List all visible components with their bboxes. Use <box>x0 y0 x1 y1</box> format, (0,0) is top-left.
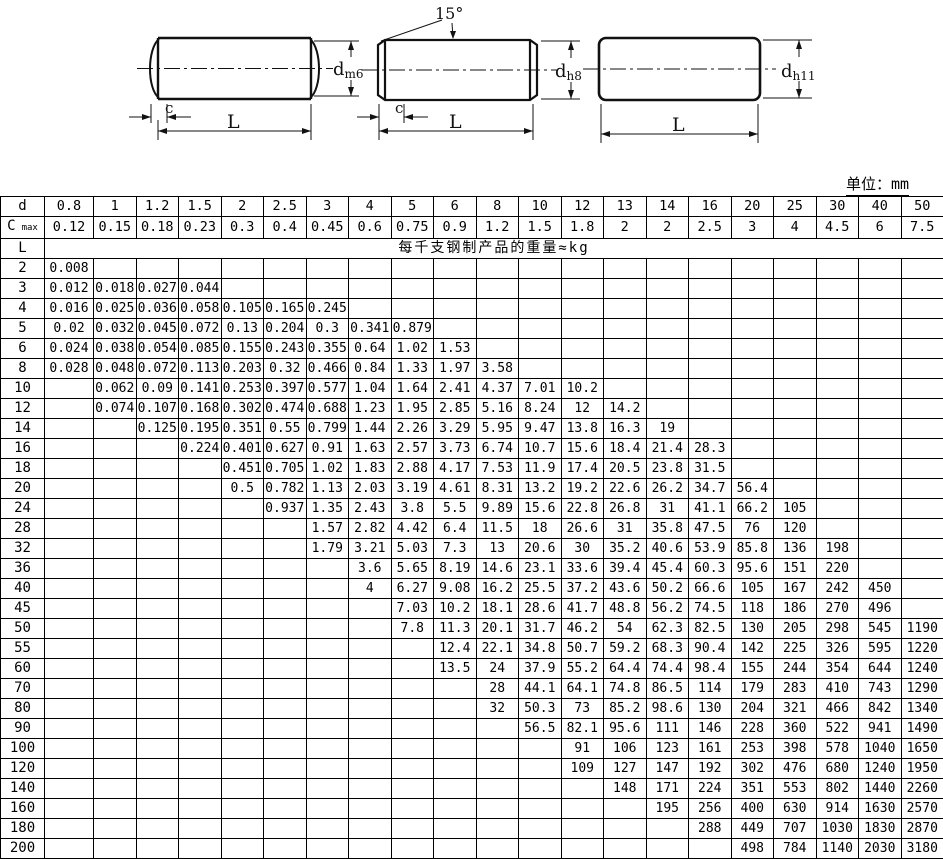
weight-cell <box>264 639 307 659</box>
table-row: 140.1250.1950.3510.550.7991.442.263.295.… <box>1 419 943 439</box>
table-row: 6013.52437.955.264.474.498.4155244354644… <box>1 659 943 679</box>
weight-cell <box>901 599 943 619</box>
pin-chamfered-drawing <box>357 20 580 140</box>
weight-cell <box>306 579 349 599</box>
weight-cell: 466 <box>816 699 859 719</box>
weight-cell: 23.1 <box>519 559 562 579</box>
weight-cell <box>731 299 774 319</box>
cmax-cell: 0.3 <box>221 217 264 239</box>
weight-cell <box>434 719 477 739</box>
weight-cell: 127 <box>604 759 647 779</box>
weight-cell <box>349 659 392 679</box>
weight-cell <box>901 499 943 519</box>
weight-cell: 167 <box>774 579 817 599</box>
weight-cell: 34.7 <box>689 479 732 499</box>
length-cell: 36 <box>1 559 45 579</box>
weight-cell: 707 <box>774 819 817 839</box>
weight-cell <box>816 519 859 539</box>
weight-cell: 98.6 <box>646 699 689 719</box>
d-header-cell: 0.8 <box>45 197 94 217</box>
weight-cell: 6.4 <box>434 519 477 539</box>
weight-cell <box>731 359 774 379</box>
d-header-cell: 13 <box>604 197 647 217</box>
weight-cell: 146 <box>689 719 732 739</box>
weight-cell: 0.474 <box>264 399 307 419</box>
weight-cell: 16.2 <box>476 579 519 599</box>
weight-cell: 10.2 <box>561 379 604 399</box>
weight-cell: 31.7 <box>519 619 562 639</box>
weight-cell <box>859 399 902 419</box>
weight-cell: 1650 <box>901 739 943 759</box>
length-cell: 28 <box>1 519 45 539</box>
weight-cell: 105 <box>774 499 817 519</box>
weight-cell <box>179 719 222 739</box>
weight-cell <box>391 639 434 659</box>
weight-cell: 105 <box>731 579 774 599</box>
weight-cell <box>859 299 902 319</box>
weight-cell: 155 <box>731 659 774 679</box>
weight-table: d0.811.21.522.53456810121314162025304050… <box>0 196 943 859</box>
weight-cell <box>774 259 817 279</box>
weight-cell: 0.02 <box>45 319 94 339</box>
weight-cell: 283 <box>774 679 817 699</box>
weight-cell: 2.57 <box>391 439 434 459</box>
weight-cell <box>136 519 179 539</box>
weight-cell: 644 <box>859 659 902 679</box>
weight-cell: 410 <box>816 679 859 699</box>
weight-cell <box>45 379 94 399</box>
weight-cell <box>349 279 392 299</box>
weight-cell: 28.6 <box>519 599 562 619</box>
weight-cell: 198 <box>816 539 859 559</box>
cmax-cell: 0.18 <box>136 217 179 239</box>
weight-cell: 0.397 <box>264 379 307 399</box>
cmax-label-main: C <box>7 218 15 234</box>
weight-cell <box>604 259 647 279</box>
weight-cell: 0.09 <box>136 379 179 399</box>
weight-cell: 545 <box>859 619 902 639</box>
weight-cell <box>901 299 943 319</box>
weight-cell: 179 <box>731 679 774 699</box>
weight-cell <box>179 799 222 819</box>
weight-cell <box>221 659 264 679</box>
table-row: 702844.164.174.886.51141792834107431290 <box>1 679 943 699</box>
weight-cell <box>45 499 94 519</box>
weight-cell <box>391 299 434 319</box>
weight-cell: 0.204 <box>264 319 307 339</box>
weight-cell <box>434 279 477 299</box>
weight-cell <box>136 699 179 719</box>
table-row: 180288449707103018302870 <box>1 819 943 839</box>
weight-cell: 11.9 <box>519 459 562 479</box>
weight-cell: 0.627 <box>264 439 307 459</box>
weight-cell: 9.47 <box>519 419 562 439</box>
table-row: 803250.37385.298.61302043214668421340 <box>1 699 943 719</box>
cmax-cell: 0.9 <box>434 217 477 239</box>
weight-cell <box>179 459 222 479</box>
d-header-cell: 16 <box>689 197 732 217</box>
l-row-label: L <box>1 239 45 259</box>
weight-cell: 56.2 <box>646 599 689 619</box>
weight-cell <box>646 319 689 339</box>
weight-cell <box>179 599 222 619</box>
d-header-cell: 8 <box>476 197 519 217</box>
length-cell: 10 <box>1 379 45 399</box>
weight-cell <box>221 279 264 299</box>
weight-cell: 1.53 <box>434 339 477 359</box>
weight-cell <box>774 399 817 419</box>
weight-cell: 45.4 <box>646 559 689 579</box>
weight-cell: 1.02 <box>306 459 349 479</box>
weight-cell <box>136 559 179 579</box>
weight-cell: 0.302 <box>221 399 264 419</box>
weight-cell: 0.113 <box>179 359 222 379</box>
length-cell: 12 <box>1 399 45 419</box>
weight-cell <box>646 819 689 839</box>
weight-cell: 5.5 <box>434 499 477 519</box>
weight-cell <box>45 799 94 819</box>
weight-cell <box>391 779 434 799</box>
weight-cell: 0.688 <box>306 399 349 419</box>
weight-cell <box>476 799 519 819</box>
weight-cell <box>45 639 94 659</box>
weight-cell <box>731 379 774 399</box>
weight-cell: 171 <box>646 779 689 799</box>
weight-cell: 1.57 <box>306 519 349 539</box>
weight-cell: 2.41 <box>434 379 477 399</box>
weight-cell: 2.03 <box>349 479 392 499</box>
weight-cell: 15.6 <box>519 499 562 519</box>
weight-cell: 120 <box>774 519 817 539</box>
weight-cell <box>689 259 732 279</box>
table-row: 5512.422.134.850.759.268.390.41422253265… <box>1 639 943 659</box>
weight-cell <box>94 739 137 759</box>
weight-cell <box>221 619 264 639</box>
weight-cell <box>45 459 94 479</box>
length-cell: 40 <box>1 579 45 599</box>
weight-cell <box>434 299 477 319</box>
d-header-cell: 10 <box>519 197 562 217</box>
d-header-cell: 2.5 <box>264 197 307 217</box>
pin-domed-drawing <box>129 38 359 140</box>
weight-cell: 31.5 <box>689 459 732 479</box>
weight-cell: 0.025 <box>94 299 137 319</box>
weight-cell <box>519 259 562 279</box>
weight-cell: 4.17 <box>434 459 477 479</box>
weight-cell: 0.195 <box>179 419 222 439</box>
weight-cell <box>221 559 264 579</box>
weight-cell: 0.018 <box>94 279 137 299</box>
length-cell: 140 <box>1 779 45 799</box>
weight-cell: 2870 <box>901 819 943 839</box>
weight-cell <box>45 779 94 799</box>
weight-cell: 59.2 <box>604 639 647 659</box>
weight-cell <box>519 739 562 759</box>
unit-label: 单位：mm <box>846 173 909 196</box>
weight-cell: 351 <box>731 779 774 799</box>
weight-cell <box>264 619 307 639</box>
weight-cell <box>816 359 859 379</box>
weight-cell <box>45 759 94 779</box>
weight-cell: 8.24 <box>519 399 562 419</box>
weight-cell <box>434 779 477 799</box>
weight-cell <box>901 439 943 459</box>
cmax-row: Cmax0.120.150.180.230.30.40.450.60.750.9… <box>1 217 943 239</box>
weight-cell: 1.97 <box>434 359 477 379</box>
weight-cell <box>136 639 179 659</box>
weight-cell <box>901 519 943 539</box>
weight-cell <box>264 659 307 679</box>
weight-cell: 48.8 <box>604 599 647 619</box>
weight-cell <box>94 439 137 459</box>
weight-cell: 22.1 <box>476 639 519 659</box>
length-cell: 100 <box>1 739 45 759</box>
weight-cell: 3.73 <box>434 439 477 459</box>
weight-cell: 114 <box>689 679 732 699</box>
weight-cell <box>561 319 604 339</box>
weight-cell: 98.4 <box>689 659 732 679</box>
weight-cell <box>349 679 392 699</box>
cmax-cell: 2.5 <box>689 217 732 239</box>
weight-cell: 3.21 <box>349 539 392 559</box>
length-cell: 180 <box>1 819 45 839</box>
d-header-cell: 20 <box>731 197 774 217</box>
weight-cell: 398 <box>774 739 817 759</box>
pin3-diameter-label: dh11 <box>781 61 816 83</box>
weight-cell <box>604 299 647 319</box>
cmax-cell: 0.23 <box>179 217 222 239</box>
weight-cell: 11.5 <box>476 519 519 539</box>
weight-cell <box>94 639 137 659</box>
weight-cell <box>901 479 943 499</box>
weight-cell: 288 <box>689 819 732 839</box>
weight-cell: 0.799 <box>306 419 349 439</box>
weight-cell: 5.65 <box>391 559 434 579</box>
weight-cell: 6.74 <box>476 439 519 459</box>
weight-cell: 1.23 <box>349 399 392 419</box>
weight-cell: 630 <box>774 799 817 819</box>
weight-cell <box>179 679 222 699</box>
weight-cell <box>221 599 264 619</box>
table-row: 240.9371.352.433.85.59.8915.622.826.8314… <box>1 499 943 519</box>
weight-cell: 0.937 <box>264 499 307 519</box>
weight-cell: 298 <box>816 619 859 639</box>
weight-cell <box>136 819 179 839</box>
weight-cell <box>859 279 902 299</box>
weight-cell: 142 <box>731 639 774 659</box>
weight-cell: 95.6 <box>604 719 647 739</box>
weight-cell: 0.451 <box>221 459 264 479</box>
weight-cell: 0.027 <box>136 279 179 299</box>
weight-cell: 20.1 <box>476 619 519 639</box>
weight-cell <box>604 279 647 299</box>
weight-cell <box>306 779 349 799</box>
cmax-cell: 0.12 <box>45 217 94 239</box>
weight-cell <box>434 739 477 759</box>
weight-cell: 0.341 <box>349 319 392 339</box>
weight-cell <box>859 499 902 519</box>
cmax-cell: 4.5 <box>816 217 859 239</box>
weight-cell: 3.8 <box>391 499 434 519</box>
weight-cell: 242 <box>816 579 859 599</box>
weight-cell: 7.01 <box>519 379 562 399</box>
weight-cell <box>136 779 179 799</box>
weight-cell <box>731 339 774 359</box>
weight-cell: 270 <box>816 599 859 619</box>
weight-cell <box>561 819 604 839</box>
weight-cell: 15.6 <box>561 439 604 459</box>
weight-cell <box>646 339 689 359</box>
weight-cell: 0.125 <box>136 419 179 439</box>
weight-cell <box>179 519 222 539</box>
weight-cell: 0.351 <box>221 419 264 439</box>
table-row: 16019525640063091416302570 <box>1 799 943 819</box>
d-header-cell: 50 <box>901 197 943 217</box>
weight-cell <box>136 799 179 819</box>
weight-cell <box>264 559 307 579</box>
weight-cell <box>901 399 943 419</box>
weight-cell: 6.27 <box>391 579 434 599</box>
weight-cell: 2.26 <box>391 419 434 439</box>
weight-cell: 1.63 <box>349 439 392 459</box>
weight-cell <box>179 619 222 639</box>
weight-cell: 802 <box>816 779 859 799</box>
cmax-cell: 2 <box>646 217 689 239</box>
weight-cell: 25.5 <box>519 579 562 599</box>
weight-cell <box>774 419 817 439</box>
d-header-cell: 5 <box>391 197 434 217</box>
d-header-cell: 1.2 <box>136 197 179 217</box>
weight-cell: 9.08 <box>434 579 477 599</box>
weight-table-body: d0.811.21.522.53456810121314162025304050… <box>1 197 943 859</box>
weight-cell <box>264 739 307 759</box>
weight-cell: 1.44 <box>349 419 392 439</box>
weight-cell <box>264 799 307 819</box>
weight-cell <box>476 319 519 339</box>
weight-cell: 0.008 <box>45 259 94 279</box>
table-row: 200.50.7821.132.033.194.618.3113.219.222… <box>1 479 943 499</box>
weight-cell: 66.6 <box>689 579 732 599</box>
weight-cell: 0.032 <box>94 319 137 339</box>
weight-cell: 2.43 <box>349 499 392 519</box>
weight-cell <box>94 819 137 839</box>
weight-cell <box>646 379 689 399</box>
weight-cell <box>94 519 137 539</box>
table-row: 4046.279.0816.225.537.243.650.266.610516… <box>1 579 943 599</box>
weight-cell <box>221 759 264 779</box>
weight-cell: 13.5 <box>434 659 477 679</box>
weight-cell <box>604 359 647 379</box>
weight-cell: 0.165 <box>264 299 307 319</box>
weight-cell: 3.58 <box>476 359 519 379</box>
weight-cell <box>264 259 307 279</box>
weight-cell: 0.577 <box>306 379 349 399</box>
weight-cell: 18.4 <box>604 439 647 459</box>
weight-cell <box>646 259 689 279</box>
weight-cell <box>476 299 519 319</box>
weight-cell: 53.9 <box>689 539 732 559</box>
weight-cell: 74.5 <box>689 599 732 619</box>
weight-cell: 3.29 <box>434 419 477 439</box>
weight-cell: 54 <box>604 619 647 639</box>
weight-cell: 321 <box>774 699 817 719</box>
weight-cell <box>264 579 307 599</box>
weight-cell <box>179 659 222 679</box>
weight-cell <box>94 679 137 699</box>
weight-cell: 0.155 <box>221 339 264 359</box>
weight-cell: 0.012 <box>45 279 94 299</box>
weight-cell <box>349 739 392 759</box>
weight-cell <box>349 799 392 819</box>
cmax-cell: 0.4 <box>264 217 307 239</box>
weight-cell: 74.4 <box>646 659 689 679</box>
weight-cell <box>901 339 943 359</box>
weight-cell <box>434 699 477 719</box>
weight-cell <box>45 479 94 499</box>
weight-cell: 354 <box>816 659 859 679</box>
weight-cell: 0.044 <box>179 279 222 299</box>
weight-cell <box>221 799 264 819</box>
weight-cell <box>901 359 943 379</box>
weight-cell: 35.2 <box>604 539 647 559</box>
weight-cell: 1.04 <box>349 379 392 399</box>
weight-cell: 1030 <box>816 819 859 839</box>
weight-cell: 0.64 <box>349 339 392 359</box>
weight-cell <box>306 659 349 679</box>
weight-cell <box>689 419 732 439</box>
weight-cell <box>816 279 859 299</box>
weight-cell <box>859 459 902 479</box>
weight-cell: 10.2 <box>434 599 477 619</box>
weight-cell: 0.84 <box>349 359 392 379</box>
weight-cell <box>264 519 307 539</box>
weight-cell <box>391 799 434 819</box>
weight-cell <box>179 699 222 719</box>
weight-cell: 41.1 <box>689 499 732 519</box>
weight-cell <box>45 819 94 839</box>
weight-cell: 50.7 <box>561 639 604 659</box>
weight-cell: 0.705 <box>264 459 307 479</box>
weight-cell <box>646 359 689 379</box>
weight-cell: 1040 <box>859 739 902 759</box>
weight-cell: 1190 <box>901 619 943 639</box>
weight-cell: 1830 <box>859 819 902 839</box>
weight-cell: 14.6 <box>476 559 519 579</box>
weight-cell <box>179 559 222 579</box>
weight-cell <box>136 439 179 459</box>
weight-cell <box>264 819 307 839</box>
weight-cell: 1.64 <box>391 379 434 399</box>
weight-cell <box>136 499 179 519</box>
weight-cell <box>179 479 222 499</box>
weight-cell <box>646 299 689 319</box>
weight-cell: 1240 <box>859 759 902 779</box>
weight-cell: 0.036 <box>136 299 179 319</box>
weight-cell <box>136 259 179 279</box>
weight-cell: 228 <box>731 719 774 739</box>
weight-cell <box>476 719 519 739</box>
weight-cell: 1.35 <box>306 499 349 519</box>
weight-cell: 2.82 <box>349 519 392 539</box>
length-cell: 50 <box>1 619 45 639</box>
weight-cell: 302 <box>731 759 774 779</box>
weight-cell: 0.466 <box>306 359 349 379</box>
weight-cell: 0.91 <box>306 439 349 459</box>
weight-cell <box>561 799 604 819</box>
cmax-cell: 4 <box>774 217 817 239</box>
cmax-cell: 2 <box>604 217 647 239</box>
length-cell: 120 <box>1 759 45 779</box>
